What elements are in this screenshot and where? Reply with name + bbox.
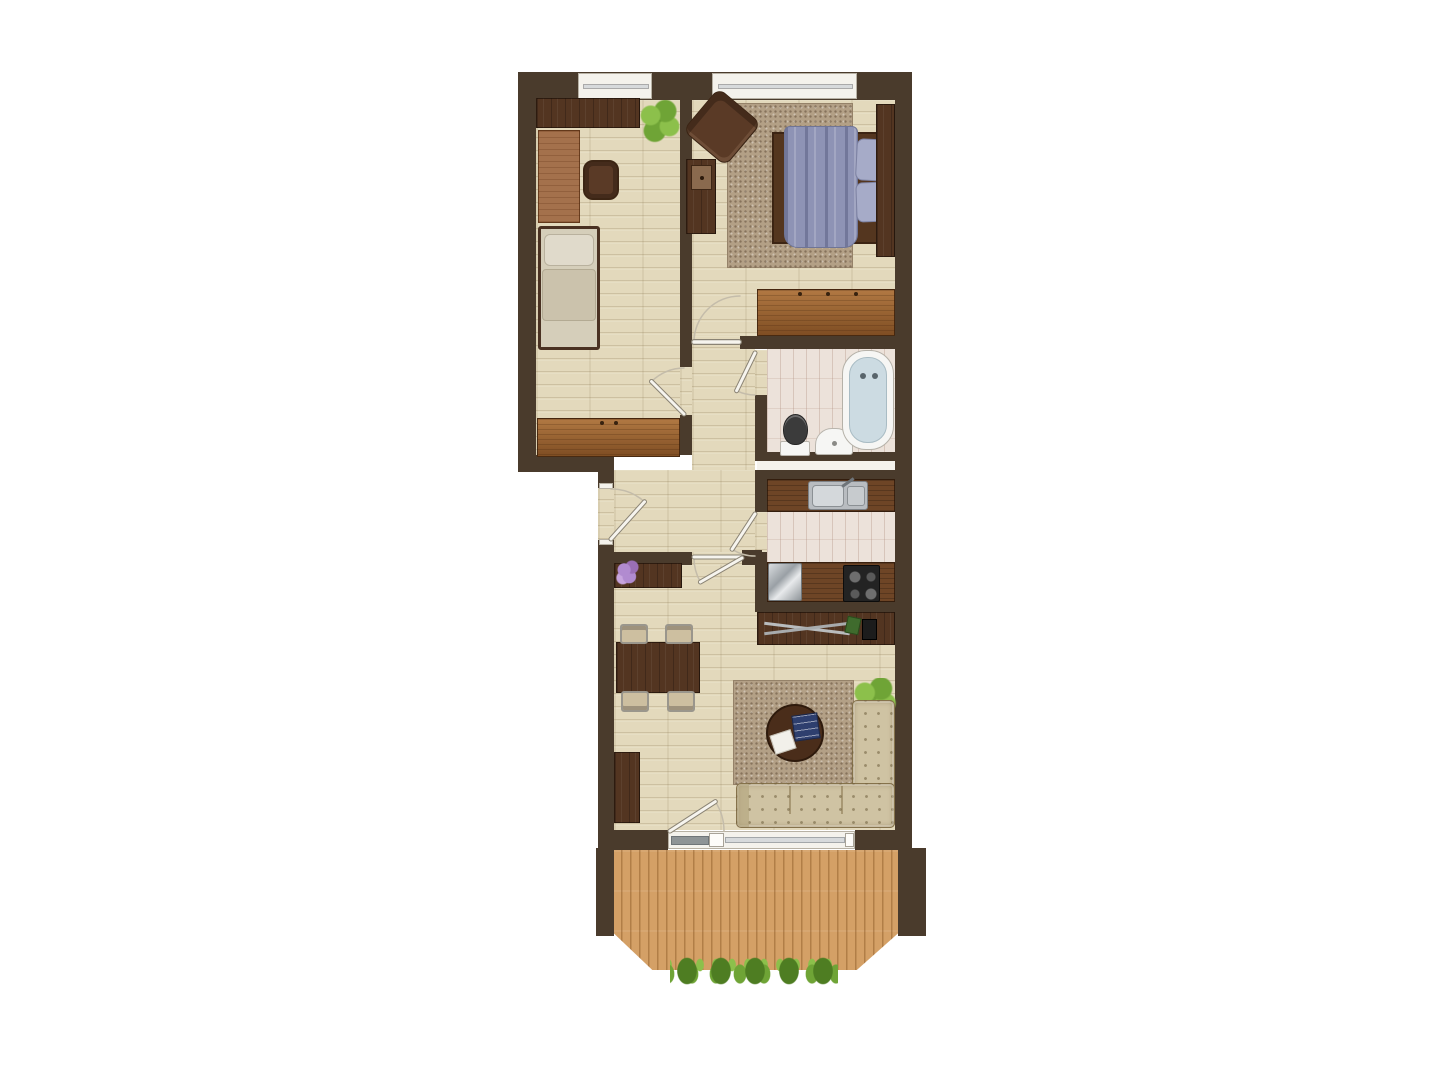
door-swing-overlay [0,0,1440,1080]
floor-plan-canvas [0,0,1440,1080]
